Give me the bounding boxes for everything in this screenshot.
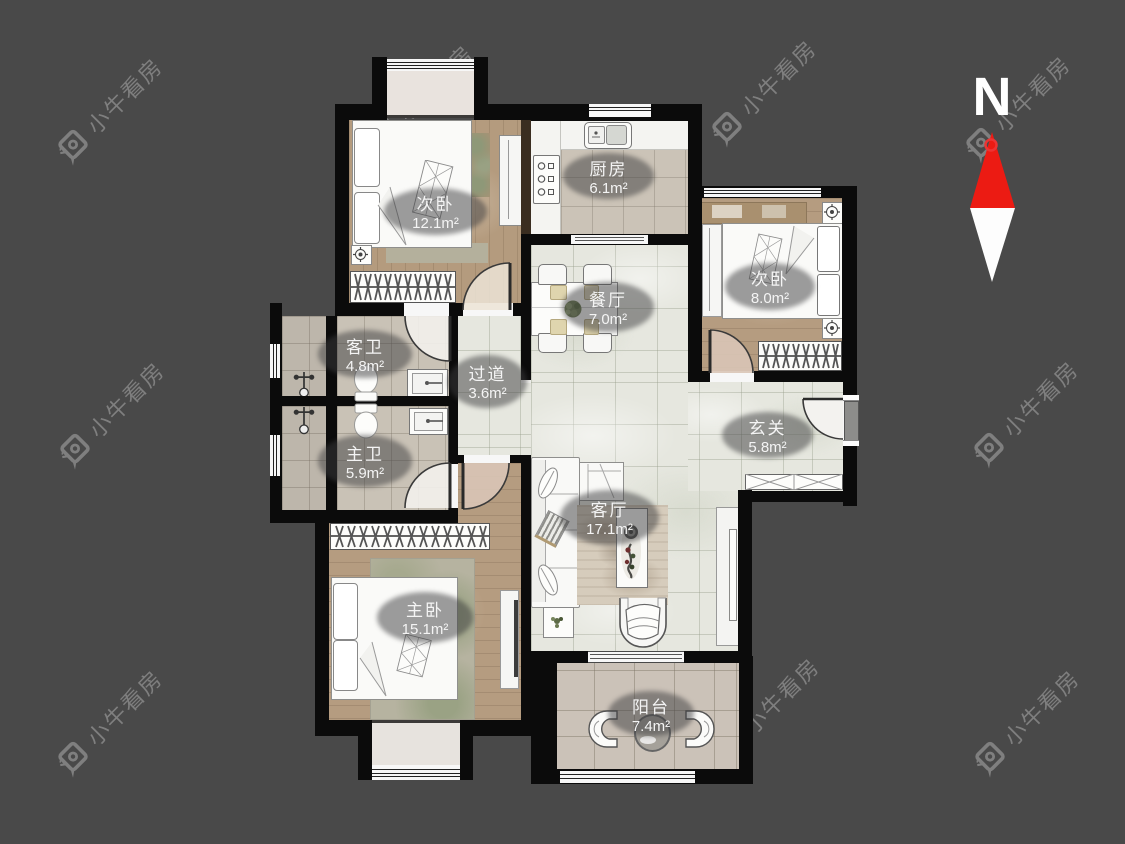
svg-text:N: N — [973, 67, 1012, 127]
